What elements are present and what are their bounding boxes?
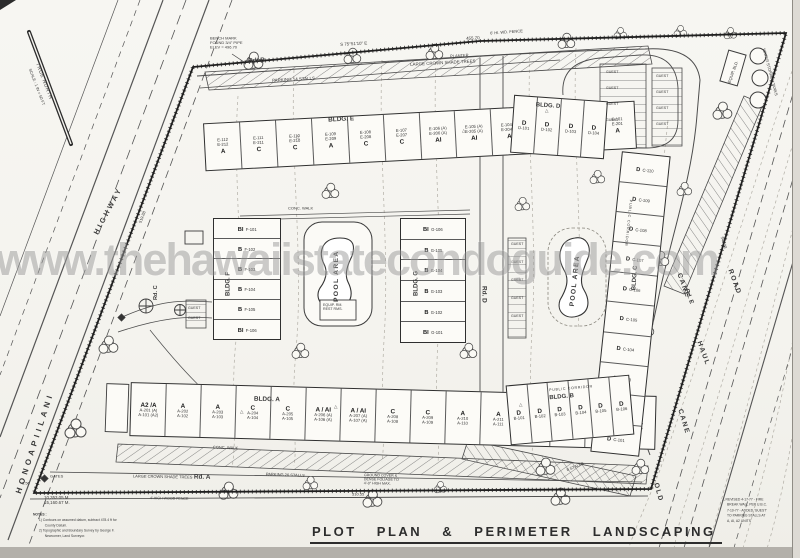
notes-block: NOTES : 1) Contours on assumed datum, su…	[33, 512, 117, 539]
unit-cell: B G-102	[401, 302, 465, 323]
revision-triangle: △	[545, 108, 548, 113]
fence-bottom-label: 4' HIGH WOOD FENCE	[150, 496, 189, 501]
unit-cell: E-109E-209A	[312, 117, 350, 165]
unit-cell: E-106 (A)E-206 (A)AI	[419, 111, 457, 159]
unit-cell: B F-105	[214, 300, 280, 320]
unit-cell: E-108E-208C	[348, 115, 386, 163]
road-c-label: Rd. C	[152, 285, 158, 300]
unit-cell: D C-109	[617, 182, 667, 217]
drawing-title: PLOT PLAN & PERIMETER LANDSCAPING	[310, 524, 722, 544]
guest-stall-label: GUEST	[511, 314, 523, 318]
unit-cell: DD-104	[581, 101, 607, 158]
unit-cell: E-110E-210C	[276, 119, 314, 167]
unit-cell: E-111E-211C	[240, 121, 278, 169]
bench-mark-note: BENCH MARKFOUND 3/4" PIPEELEV = 496.70	[210, 36, 243, 50]
unit-cell: AA-203A-103	[200, 385, 236, 438]
road-b-label: Rd. B	[248, 56, 265, 64]
unit-cell: AA-202A-102	[165, 384, 201, 437]
dim-455-label: 455.70	[466, 35, 480, 41]
road-d-label: Rd. D	[481, 286, 488, 303]
conc-walk-label-2: CONC. WALK	[213, 445, 238, 450]
guest-stall-label: GUEST	[511, 296, 523, 300]
ground-cover-note: GROUND COVER &DENSE FOLIAGE TO4'-0" HIGH…	[364, 473, 399, 486]
plot-plan-drawing: www.thehawaiistatecondoguide.com E-112E-…	[0, 0, 800, 558]
revision-triangle: △	[462, 128, 465, 133]
unit-cell: E-105 (A)E-205 (A)AI	[455, 109, 493, 157]
revision-triangle: △	[722, 497, 725, 501]
road-a-label: Rd. A	[194, 473, 211, 481]
guest-stall-label: GUEST	[188, 316, 200, 320]
building-e-label: BLDG. E	[328, 115, 354, 124]
unit-cell: CA-209A-109	[410, 390, 446, 443]
building-a-label: BLDG. A	[254, 395, 280, 403]
revision-triangle: △	[296, 134, 299, 139]
unit-cell: D C-110	[620, 152, 670, 187]
scan-corner-mark	[0, 0, 16, 10]
revision-triangle: △	[240, 409, 243, 414]
revision-triangle: △	[334, 404, 337, 409]
guest-stall-label: GUEST	[656, 122, 668, 126]
guest-stall-label: GUEST	[188, 306, 200, 310]
guest-stall-label: GUEST	[656, 106, 668, 110]
unit-cell: D C-105	[604, 302, 654, 337]
revision-line: A, AI, A2 UNITS	[727, 518, 767, 523]
unit-cell: DB-106	[609, 376, 633, 435]
revision-line: REVISED 4-17-77 - FIRE	[726, 497, 764, 501]
unit-cell: D C-104	[601, 332, 651, 367]
guest-stall-label: GUEST	[656, 74, 668, 78]
gates-label: GATES	[50, 474, 63, 479]
pool-building-label: EQUIP. RM.REST RMS.	[323, 303, 343, 311]
scan-edge-right	[792, 0, 800, 558]
conc-walk-label-1: CONC. WALK	[288, 206, 313, 211]
unit-cell: A / AIA-207 (A)A-107 (A)	[340, 389, 376, 442]
scan-edge-bottom	[0, 547, 800, 558]
guest-stall-label: GUEST	[606, 118, 618, 122]
unit-cell: CA-208A-108	[375, 390, 411, 443]
unit-cell: E-112E-212A	[204, 122, 242, 170]
unit-cell: BI G-101	[401, 322, 465, 342]
revision-block: △ REVISED 4-17-77 - FIRE BREAK WALL PER …	[722, 497, 767, 523]
guest-stall-label: GUEST	[656, 90, 668, 94]
guest-stall-label: GUEST	[606, 70, 618, 74]
watermark: www.thehawaiistatecondoguide.com	[0, 234, 718, 286]
corner-dim-label: 6.56	[22, 481, 30, 486]
revision-triangle: △	[519, 402, 522, 407]
guest-stall-label: GUEST	[606, 102, 618, 106]
planter-label: PLANTER	[450, 53, 469, 59]
unit-cell: A2 /AA-201 (A)A-101 (A2)	[130, 383, 166, 436]
dim-510-label: 510.55	[352, 492, 364, 497]
revision-line: BREAK WALL PER U.B.C.	[727, 502, 767, 507]
unit-cell: A / AIA-206 (A)A-106 (A)	[305, 388, 341, 441]
area-figures: 10,353.05 M.15,160.67 M.	[44, 495, 70, 505]
unit-cell: BI F-106	[214, 320, 280, 339]
guest-stall-label: GUEST	[606, 86, 618, 90]
note-line: Newcomer, Land Surveyor.	[45, 533, 117, 538]
unit-cell: E-107E-207C	[383, 113, 421, 161]
unit-cell: AA-210A-110	[445, 391, 481, 444]
